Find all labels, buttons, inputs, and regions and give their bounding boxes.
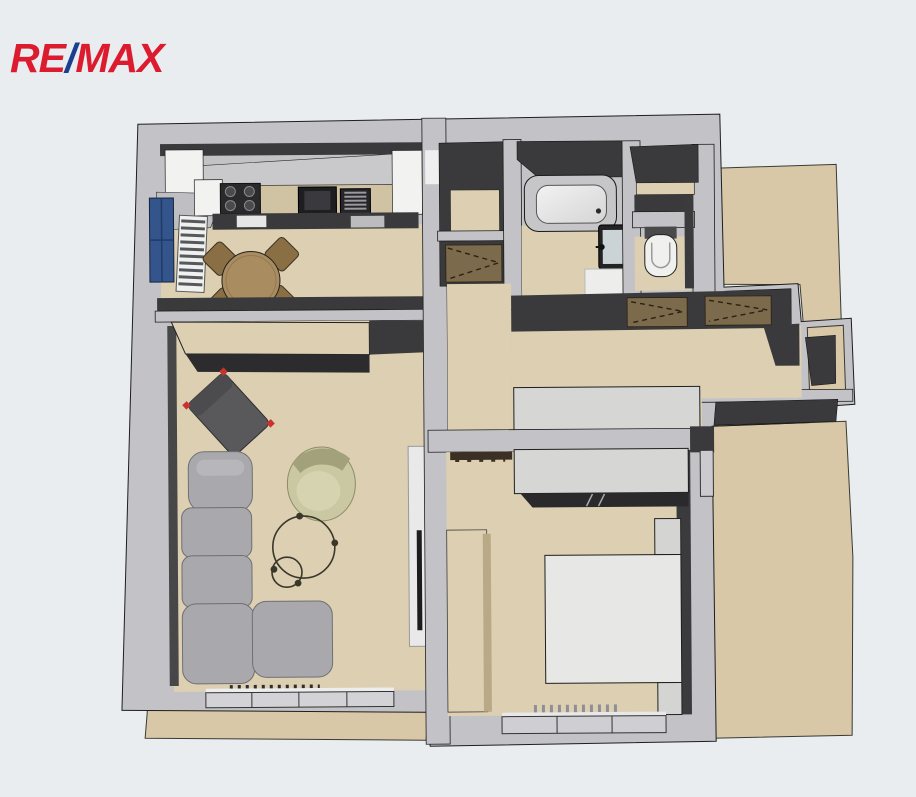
floor-plan-canvas: RE/MAX: [0, 0, 916, 797]
pantry-closet-room: [437, 142, 510, 286]
logo-max: MAX: [75, 35, 167, 81]
cabinet-front: [351, 216, 385, 228]
tall-cabinet: [447, 530, 492, 712]
bedroom-window: [502, 716, 666, 734]
hall-low-cabinet: [514, 386, 700, 431]
pantry-bottom-wall: [438, 231, 510, 242]
burner: [225, 201, 235, 211]
coat-rail: [450, 452, 512, 460]
bedroom-door-jamb: [690, 426, 714, 452]
pantry-floor: [450, 190, 499, 233]
burner: [244, 186, 254, 196]
burner: [244, 200, 254, 210]
sofa-cushion: [182, 507, 252, 557]
bedroom-door-leaf: [700, 450, 713, 496]
sofa-cushion: [182, 555, 252, 607]
sideboard-top: [171, 321, 369, 356]
wc-shelf-face: [634, 194, 692, 212]
kitchen-radiator: [176, 215, 207, 292]
burner: [225, 187, 235, 197]
bathtub-basin: [536, 185, 606, 223]
wc-top-wall-face: [630, 144, 698, 182]
sofa-chaise-cushion: [252, 601, 333, 678]
bedroom: [428, 426, 716, 734]
sink-basin: [304, 191, 330, 210]
wc-right-wall-face: [684, 194, 694, 288]
nightstand-right-bottom: [658, 682, 682, 714]
sofa-highlight: [196, 460, 244, 476]
table-knob: [297, 514, 302, 519]
entrance-closet: [440, 241, 508, 286]
hall-wardrobe-2: [705, 296, 771, 325]
kitchen-dining-room: [149, 142, 425, 323]
kitchen-sink: [298, 187, 336, 214]
washbasin: [596, 225, 627, 269]
tv: [417, 530, 423, 630]
armchair: [287, 447, 356, 521]
toilet: [645, 226, 677, 276]
remax-logo: RE/MAX: [10, 35, 167, 81]
hall-wardrobe-1: [627, 297, 687, 326]
living-room: [167, 320, 430, 708]
armchair-cushion: [296, 471, 340, 511]
bathtub: [524, 175, 616, 232]
hall-floor-left: [447, 284, 512, 432]
bed: [545, 554, 682, 683]
kitchen-cabinet-mid: [194, 180, 222, 216]
bathtub-drain: [596, 208, 601, 213]
sideboard-front: [185, 353, 369, 374]
sofa-corner-cushion: [182, 603, 255, 684]
table-knob: [271, 567, 276, 572]
tall-cabinet-top: [447, 530, 488, 712]
cooktop: [220, 183, 260, 213]
bedroom-wardrobe: [514, 448, 688, 507]
nightstand-right-top: [655, 518, 681, 554]
bath-mat: [585, 269, 623, 295]
dishwasher-front: [236, 215, 266, 227]
oven-unit: [340, 189, 370, 215]
kitchen-cabinet-right: [392, 150, 422, 214]
entry-wall-face: [714, 399, 838, 425]
wardrobe-top-slab: [514, 448, 688, 493]
table-knob: [295, 581, 300, 586]
toilet-bowl: [645, 234, 677, 276]
wc-room: [622, 140, 715, 303]
washbasin-bowl: [603, 230, 623, 264]
floor-plan: [118, 113, 857, 748]
logo-re: RE: [10, 35, 68, 81]
living-window: [206, 691, 394, 707]
dining-divider-wall-top: [155, 309, 425, 322]
living-top-wall-face: [369, 320, 425, 354]
tall-cabinet-side: [483, 534, 492, 712]
wc-upper-floor: [636, 182, 694, 194]
corridor-floor-right: [710, 421, 854, 738]
bathroom-top-wall-face: [517, 141, 624, 178]
table-knob: [332, 540, 337, 545]
